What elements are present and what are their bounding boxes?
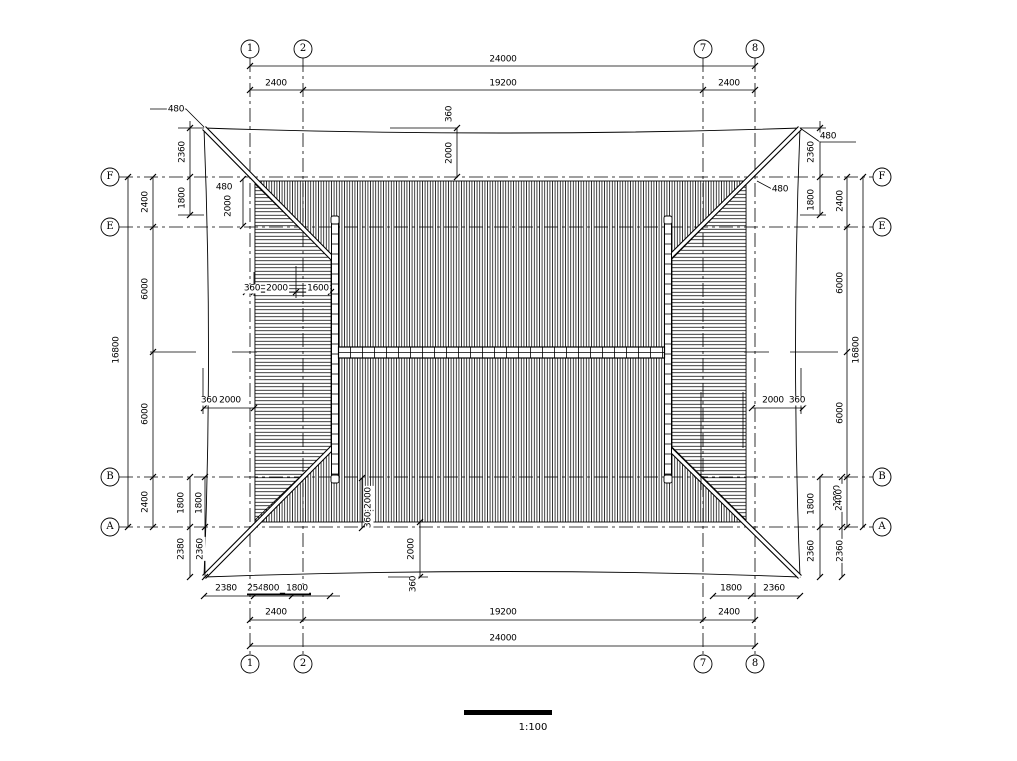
grid-bubble-col-7-bottom	[694, 655, 712, 673]
grid-bubble-row-A-left	[101, 518, 119, 536]
grid-bubble-row-F-right	[873, 168, 891, 186]
grid-bubble-row-B-right	[873, 468, 891, 486]
grid-bubble-col-1-top	[241, 40, 259, 58]
grid-bubble-row-B-left	[101, 468, 119, 486]
grid-bubble-col-2-top	[294, 40, 312, 58]
main-ridge	[339, 347, 665, 358]
vertical-ridge-right	[664, 216, 672, 483]
grid-bubble-col-8-bottom	[746, 655, 764, 673]
grid-bubble-col-8-top	[746, 40, 764, 58]
roof-plan-canvas: 1 2 7 8 1 2 7 8 F E B A F E B A 1:100 24…	[0, 0, 1017, 761]
scale-bar	[464, 710, 552, 715]
grid-bubble-row-E-left	[101, 218, 119, 236]
grid-bubble-col-7-top	[694, 40, 712, 58]
roof-plan-drawing	[0, 0, 1017, 761]
vertical-ridge-left	[331, 216, 339, 483]
grid-bubble-col-1-bottom	[241, 655, 259, 673]
grid-bubble-row-E-right	[873, 218, 891, 236]
grid-bubble-row-F-left	[101, 168, 119, 186]
grid-bubble-row-A-right	[873, 518, 891, 536]
grid-bubble-col-2-bottom	[294, 655, 312, 673]
